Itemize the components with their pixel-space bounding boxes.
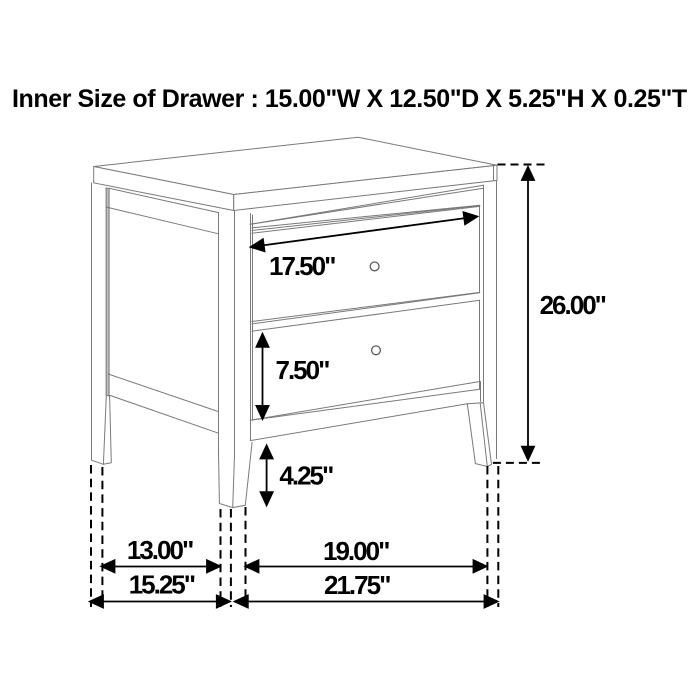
svg-text:19.00": 19.00" <box>323 536 389 566</box>
svg-text:15.25": 15.25" <box>129 570 195 600</box>
svg-text:7.50": 7.50" <box>276 355 330 385</box>
svg-text:Inner Size of Drawer : 15.00"W: Inner Size of Drawer : 15.00"W X 12.50"D… <box>12 85 687 113</box>
svg-text:17.50": 17.50" <box>269 251 335 281</box>
svg-text:21.75": 21.75" <box>324 570 390 600</box>
svg-text:4.25": 4.25" <box>279 461 333 491</box>
svg-text:13.00": 13.00" <box>127 535 193 565</box>
svg-text:26.00": 26.00" <box>540 290 606 320</box>
